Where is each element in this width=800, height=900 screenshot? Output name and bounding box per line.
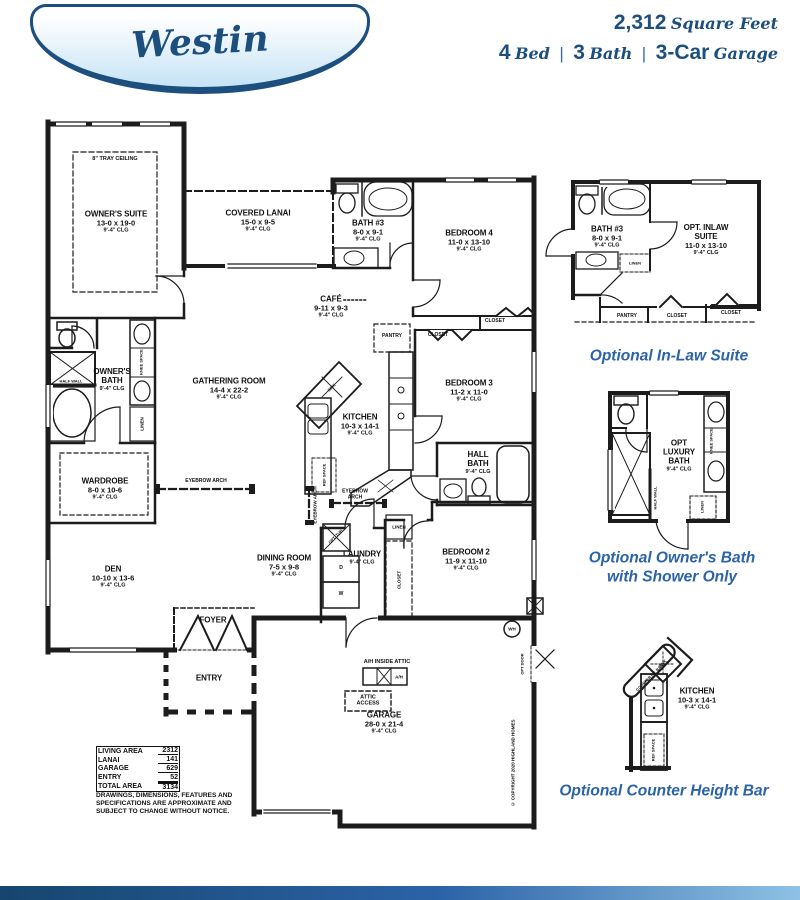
water-heater-label: WH — [508, 626, 516, 631]
room-dining: DINING ROOM7-5 x 9-89'-4" CLG — [257, 554, 311, 578]
table-row: ENTRY52 — [97, 773, 179, 782]
closet-label: CLOSET — [428, 333, 448, 339]
room-wardrobe: WARDROBE8-0 x 10-69'-4" CLG — [82, 477, 129, 501]
caption-inlaw-suite: Optional In-Law Suite — [590, 346, 748, 365]
opt-luxury-bath: OPT LUXURY BATH9'-4" CLG — [660, 439, 698, 472]
linen-label: LINEN — [701, 501, 706, 513]
knee-space-label: KNEE SPACE — [710, 428, 715, 454]
opt-bar-kitchen: KITCHEN10-3 x 14-19'-4" CLG — [678, 687, 716, 711]
room-covered-lanai: COVERED LANAI15-0 x 9-59'-4" CLG — [226, 209, 291, 233]
opt-inlaw-bath3: BATH #38-0 x 9-19'-4" CLG — [591, 225, 623, 249]
area-table: LIVING AREA2312 LANAI141 GARAGE629 ENTRY… — [96, 746, 180, 792]
closet-label: CLOSET — [485, 319, 505, 325]
knee-space-label: KNEE SPACE — [140, 349, 145, 375]
ref-space-label: REF SPACE — [652, 739, 657, 762]
table-row: LIVING AREA2312 — [97, 747, 179, 756]
ref-space-label: REF SPACE — [323, 464, 328, 487]
caption-owners-bath-line1: Optional Owner's Bath — [589, 549, 755, 568]
bottom-accent-bar — [0, 886, 800, 900]
caption-owners-bath-line2: with Shower Only — [589, 568, 755, 587]
attic-access-label: ATTIC ACCESS — [352, 695, 384, 708]
room-cafe: CAFÉ9-11 x 9-39'-4" CLG — [314, 295, 348, 319]
room-bedroom-4: BEDROOM 411-0 x 13-109'-4" CLG — [445, 229, 493, 253]
room-owners-bath: OWNER'S BATH9'-4" CLG — [90, 368, 134, 392]
eyebrow-arch-label: EYEBROW ARCH — [339, 489, 371, 501]
room-foyer: FOYER — [199, 617, 226, 626]
eyebrow-arch-label: EYEBROW ARCH — [312, 486, 317, 523]
pantry-label: PANTRY — [617, 314, 637, 320]
half-wall-label: HALF WALL — [59, 380, 82, 385]
linen-label: LINEN — [392, 524, 406, 529]
linen-label: LINEN — [139, 417, 144, 431]
half-wall-label: HALF WALL — [654, 486, 659, 509]
room-den: DEN10-10 x 13-69'-4" CLG — [92, 565, 135, 589]
washer-label: W — [339, 592, 344, 598]
copyright-label: © COPYRIGHT 2020 HIGHLAND HOMES — [510, 719, 515, 806]
closet-label: CLOSET — [396, 571, 401, 589]
closet-label: CLOSET — [721, 311, 741, 317]
table-row: LANAI141 — [97, 756, 179, 765]
pantry-label: PANTRY — [382, 334, 402, 340]
table-row-total: TOTAL AREA3134 — [97, 782, 179, 791]
caption-counter-bar: Optional Counter Height Bar — [559, 781, 768, 800]
opt-door-label: OPT DOOR — [521, 653, 526, 674]
table-row: GARAGE629 — [97, 765, 179, 774]
ah-label: A/H — [395, 674, 403, 679]
room-bedroom-3: BEDROOM 311-2 x 11-09'-4" CLG — [445, 379, 493, 403]
room-entry: ENTRY — [196, 675, 222, 684]
tray-ceiling-label: 8" TRAY CEILING — [92, 156, 137, 162]
dryer-label: D — [339, 566, 343, 572]
room-owners-suite: OWNER'S SUITE13-0 x 19-09'-4" CLG — [85, 210, 147, 234]
room-garage: GARAGE28-0 x 21-49'-4" CLG — [365, 711, 403, 735]
opt-inlaw-suite: OPT. INLAW SUITE11-0 x 13-109'-4" CLG — [680, 224, 732, 256]
disclaimer-text: DRAWINGS, DIMENSIONS, FEATURES AND SPECI… — [96, 792, 246, 816]
floor-plan-page: Westin 2,312 Square Feet 4 Bed | 3 Bath … — [0, 0, 800, 900]
caption-owners-bath: Optional Owner's Bath with Shower Only — [589, 549, 755, 588]
room-hall-bath: HALL BATH9'-4" CLG — [463, 451, 493, 475]
room-bath-3: BATH #38-0 x 9-19'-4" CLG — [352, 219, 384, 243]
room-laundry: LAUNDRY9'-4" CLG — [343, 550, 381, 565]
room-bedroom-2: BEDROOM 211-9 x 11-109'-4" CLG — [442, 548, 490, 572]
linen-label: LINEN — [629, 262, 641, 267]
room-gathering: GATHERING ROOM14-4 x 22-29'-4" CLG — [192, 377, 265, 401]
room-kitchen: KITCHEN10-3 x 14-19'-4" CLG — [341, 413, 379, 437]
eyebrow-arch-label: EYEBROW ARCH — [185, 479, 226, 485]
ah-inside-attic-label: A/H INSIDE ATTIC — [364, 659, 410, 665]
closet-label: CLOSET — [667, 314, 687, 320]
